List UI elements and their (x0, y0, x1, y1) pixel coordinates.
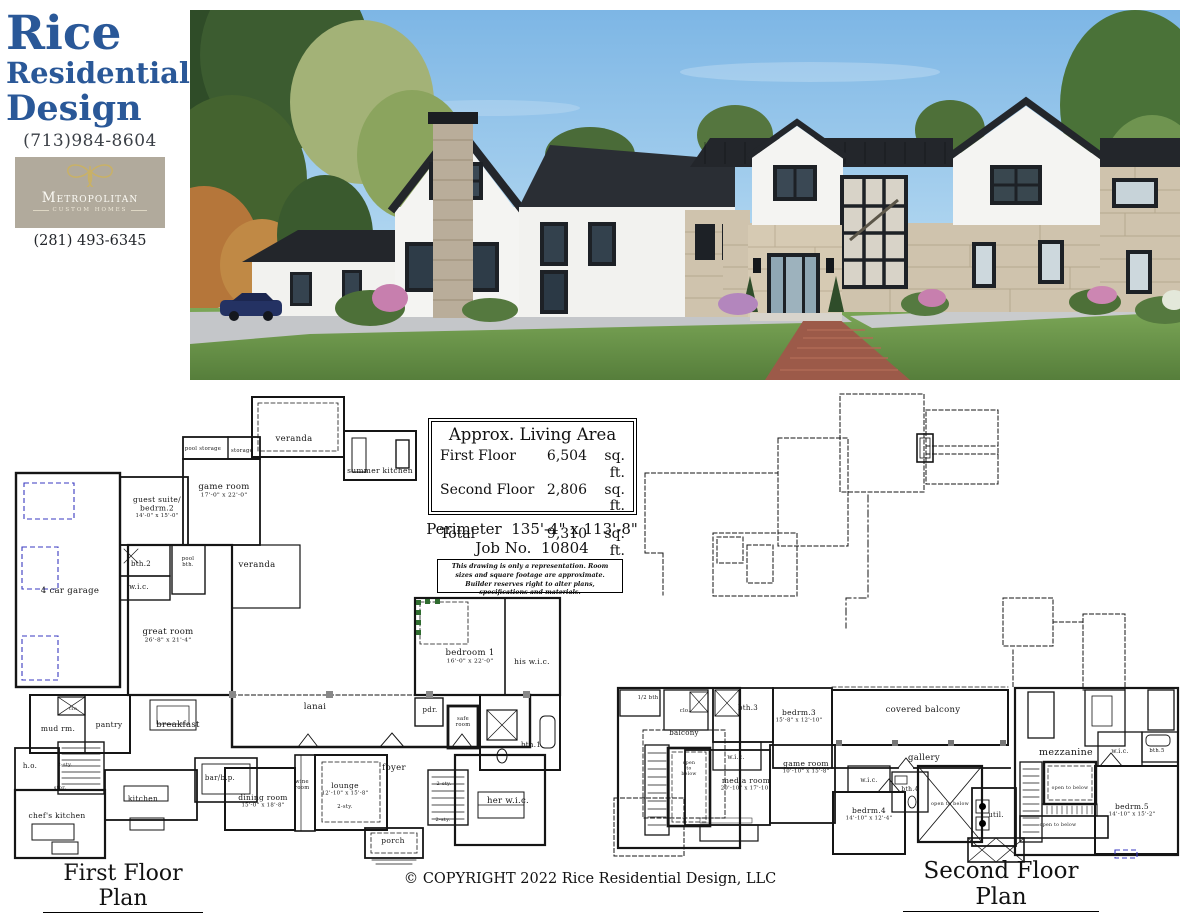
room-label: veranda (237, 560, 275, 570)
room-label: her w.i.c. (487, 796, 529, 806)
garage-car-outlines (22, 483, 74, 680)
tagline-rule (131, 210, 147, 211)
room-label: lanai (304, 702, 327, 712)
room-label: 17'-0" x 22'-0" (201, 493, 248, 499)
logo-line-design: Design (6, 91, 216, 126)
roof-outlines (614, 394, 1125, 856)
room-label: chef's kitchen (29, 811, 86, 820)
first-floor-plan-title: First Floor Plan (43, 861, 203, 913)
room-label: balcony (669, 729, 699, 737)
room-label: media room (722, 776, 770, 785)
room-label: veranda (274, 434, 312, 444)
room-label: 2-sty. (58, 762, 73, 768)
room-label: 14'-10" x 15'-2" (1109, 812, 1156, 818)
bush (462, 298, 518, 322)
logo-line-rice: Rice (6, 10, 216, 57)
room-label: safe (457, 716, 469, 722)
room-label: bedrm.3 (782, 708, 816, 717)
room-label: below (681, 771, 696, 777)
house-rendering-photo (190, 10, 1180, 380)
second-floor-plan-drawing: 1/2 bthclo.bth.3bedrm.315'-8" x 12'-10"w… (610, 388, 1180, 868)
window (695, 224, 715, 260)
room-label: 1/2 bth (638, 695, 659, 701)
entry-step (750, 313, 842, 321)
room-label: bth.2 (131, 560, 151, 568)
room-label: bedroom 1 (445, 648, 494, 658)
room-label: pool (182, 556, 194, 562)
porch-lantern (826, 258, 834, 273)
room-label: stor. (54, 785, 67, 791)
builder-monogram-icon (15, 157, 165, 187)
room-label: 26'-8" x 21'-4" (145, 638, 192, 644)
room-label: 20'-10" x 17'-10" (721, 786, 772, 792)
room-label: clo. (680, 708, 690, 714)
room-label: bth. (182, 562, 194, 568)
room-label: bar/b.p. (205, 774, 235, 782)
room-label: covered balcony (886, 705, 961, 715)
room-label: his w.i.c. (514, 657, 550, 666)
copyright-line: © COPYRIGHT 2022 Rice Residential Design… (385, 871, 795, 887)
room-label: 14'-0" x 15'-0" (135, 513, 178, 519)
room-label: w.i.c. (129, 583, 149, 591)
builder-phone: (281) 493-6345 (15, 233, 165, 249)
flower-bush (1087, 286, 1117, 304)
room-label: w.i.c. (1111, 748, 1128, 755)
room-label: lounge (331, 781, 359, 790)
room-label: h.o. (23, 762, 37, 770)
first-floor-room-labels: verandasummer kitchenpool storagestorage… (23, 434, 550, 845)
room-label: wine (295, 779, 309, 785)
room-label: open (683, 761, 696, 766)
room-label: pantry (96, 720, 123, 729)
room-label: game room (783, 759, 829, 768)
room-label: 14'-10" x 12'-4" (846, 816, 893, 822)
tagline-rule (33, 210, 49, 211)
room-label: pdr. (423, 706, 438, 714)
room-label: open to below (1052, 785, 1089, 791)
room-label: open to below (1040, 822, 1077, 828)
room-label: 10'-10" x 15'-8" (783, 769, 830, 775)
flower-bush (718, 293, 758, 315)
room-label: great room (142, 627, 193, 637)
room-label: 2-sty. (436, 817, 451, 823)
room-label: bth.4 (901, 786, 918, 793)
room-label: room (456, 722, 471, 728)
room-label: util. (988, 811, 1004, 819)
room-label: 2-sty. (437, 781, 452, 787)
room-label: clo. (69, 706, 79, 712)
room-label: bedrm.4 (852, 806, 886, 815)
logo-line-residential: Residential (6, 59, 216, 88)
room-label: mezzanine (1039, 747, 1093, 758)
room-label: kitchen (128, 794, 158, 803)
room-label: w.i.c. (860, 777, 877, 784)
room-label: 16'-0" x 22'-0" (447, 659, 494, 665)
cloud (680, 62, 940, 82)
room-label: bth.1 (521, 741, 541, 749)
porch-lantern (753, 258, 761, 273)
room-label: storage (231, 448, 253, 454)
first-floor-plan-drawing: verandasummer kitchenpool storagestorage… (0, 388, 650, 868)
room-label: 12'-10" x 15'-8" (322, 791, 369, 797)
flower-bush (372, 284, 408, 312)
house-rendering (190, 10, 1180, 380)
room-label: gallery (908, 753, 940, 763)
rice-logo: Rice Residential Design (6, 10, 216, 126)
room-label: pool storage (185, 446, 221, 452)
room-label: 15'-8" x 12'-10" (776, 718, 823, 724)
builder-tagline: CUSTOM HOMES (53, 207, 128, 213)
builder-name: Metropolitan (15, 190, 165, 206)
room-label: 2-sty. (337, 804, 353, 810)
chimney-cap (428, 112, 478, 124)
flower-bush (918, 289, 946, 307)
room-label: bth.5 (1149, 748, 1164, 754)
far-right-roof (1100, 138, 1180, 167)
room-label: breakfast (156, 720, 200, 730)
room-label: foyer (382, 763, 406, 773)
room-label: 4 car garage (41, 586, 99, 596)
builder-logo: Metropolitan CUSTOM HOMES (15, 157, 165, 228)
room-label: summer kitchen (347, 466, 413, 475)
room-label: open to below (931, 801, 970, 807)
second-floor-plan-title: Second Floor Plan (903, 858, 1099, 912)
room-label: dining room (238, 793, 287, 802)
room-label: room (295, 785, 310, 791)
designer-phone: (713)984-8604 (12, 131, 168, 151)
room-label: w.i.c. (727, 754, 744, 761)
room-label: bedrm.2 (140, 504, 174, 513)
room-label: game room (198, 482, 249, 492)
room-label: 15'-0" x 18'-8" (241, 803, 284, 809)
room-label: mud rm. (41, 724, 75, 733)
room-label: to (686, 766, 691, 772)
room-label: bth.3 (738, 704, 758, 712)
room-label: porch (381, 836, 404, 845)
room-label: bedrm.5 (1115, 802, 1149, 811)
